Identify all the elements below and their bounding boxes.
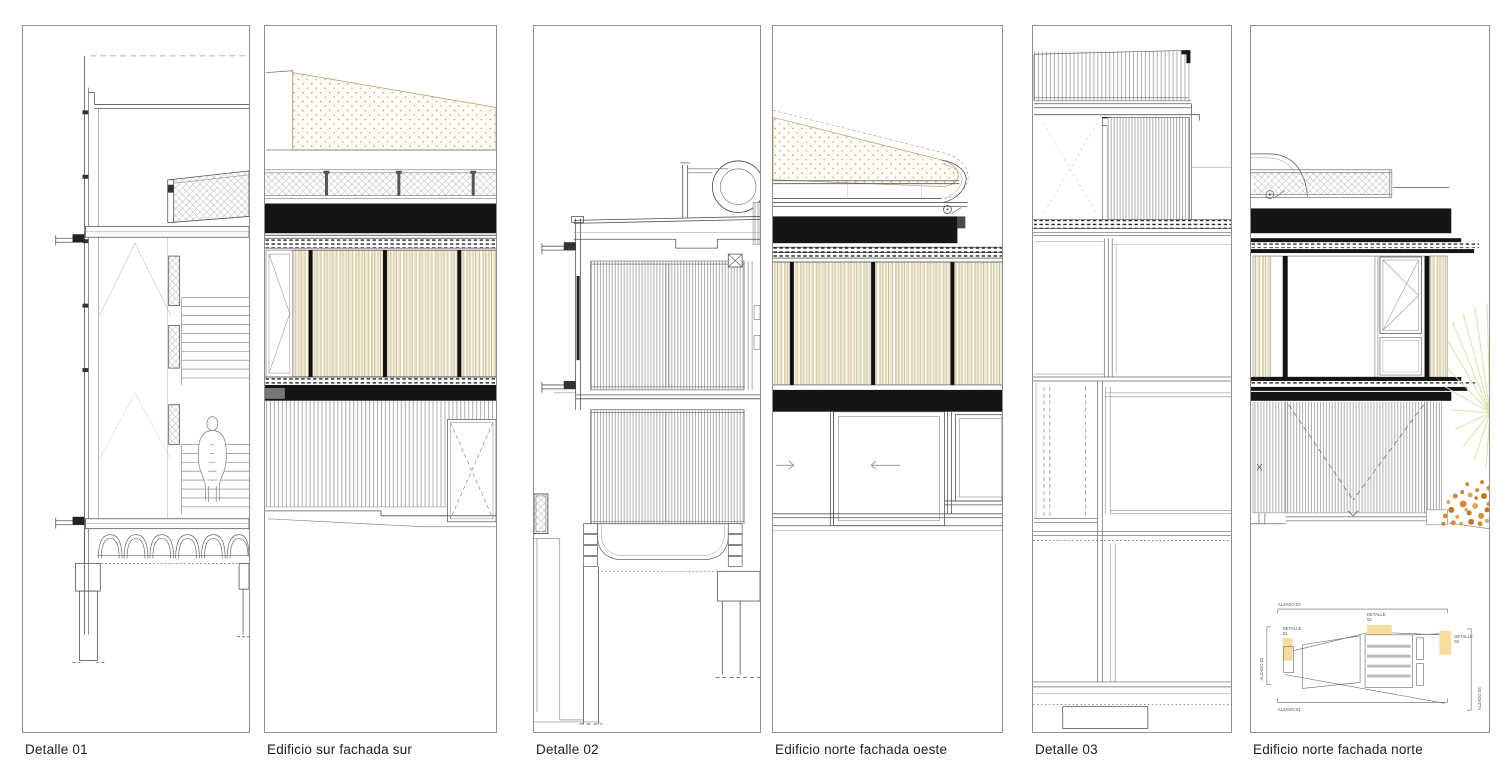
keyplan-label-alzado-04: ALZADO 04	[1477, 687, 1482, 711]
drawing-detalle-02-section	[534, 26, 760, 732]
caption-fachada-oeste: Edificio norte fachada oeste	[775, 742, 947, 757]
caption-fachada-norte: Edificio norte fachada norte	[1253, 742, 1423, 757]
keyplan-label-alzado-03: ALZADO 03	[1259, 657, 1264, 681]
drawing-detalle-03-section	[1033, 26, 1231, 732]
keyplan-label-detalle-01-num: 01	[1283, 631, 1288, 636]
keyplan-highlight-detalle-01	[1283, 638, 1293, 661]
keyplan-highlight-detalle-02	[1367, 625, 1392, 635]
drawing-fachada-norte-elevation: ALZADO 02 ALZADO 01 ALZADO 03 ALZADO 04	[1251, 26, 1489, 732]
drawing-sheet: ALZADO 02 ALZADO 01 ALZADO 03 ALZADO 04	[0, 0, 1512, 772]
keyplan-label-alzado-02: ALZADO 02	[1278, 602, 1302, 607]
keyplan-label-alzado-01: ALZADO 01	[1278, 707, 1302, 712]
caption-detalle-02: Detalle 02	[536, 742, 599, 757]
drawing-fachada-sur-elevation	[265, 26, 496, 732]
keyplan: ALZADO 02 ALZADO 01 ALZADO 03 ALZADO 04	[1259, 602, 1482, 712]
keyplan-label-detalle-02-num: 02	[1367, 617, 1372, 622]
drawing-fachada-oeste-elevation	[773, 26, 1002, 732]
drawing-detalle-01-section	[23, 26, 249, 732]
panel-fachada-sur	[264, 25, 497, 733]
caption-fachada-sur: Edificio sur fachada sur	[267, 742, 412, 757]
flowering-shrub	[1441, 480, 1489, 526]
panel-detalle-03	[1032, 25, 1232, 733]
panel-detalle-01	[22, 25, 250, 733]
caption-detalle-03: Detalle 03	[1035, 742, 1098, 757]
panel-fachada-oeste	[772, 25, 1003, 733]
keyplan-label-detalle-03-num: 03	[1454, 639, 1459, 644]
panel-detalle-02	[533, 25, 761, 733]
panel-fachada-norte: ALZADO 02 ALZADO 01 ALZADO 03 ALZADO 04	[1250, 25, 1490, 733]
keyplan-highlight-detalle-03	[1439, 631, 1451, 655]
caption-detalle-01: Detalle 01	[25, 742, 88, 757]
